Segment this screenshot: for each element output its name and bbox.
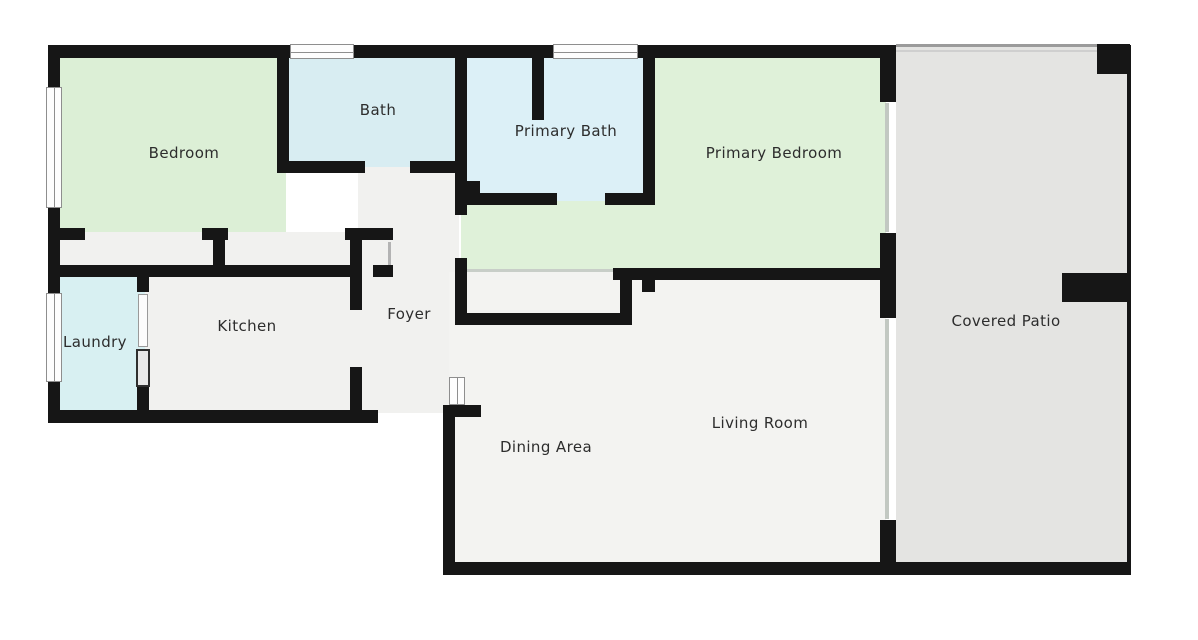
closet-door-line [388, 242, 391, 265]
wall-closet-right [620, 271, 632, 325]
wall-stub-below [642, 280, 655, 292]
room-label-kitchen: Kitchen [217, 317, 276, 335]
wall-primarybath-stub [532, 58, 544, 120]
wall-bedroom-bath [277, 45, 289, 173]
wall-laundry-bottom [137, 386, 149, 412]
wall-dining-left [443, 405, 455, 575]
wall-laundry-top [137, 273, 149, 292]
room-covered-patio [896, 46, 1127, 566]
patio-open-edge-line2 [896, 50, 1127, 52]
room-label-primary-bedroom: Primary Bedroom [706, 144, 843, 162]
wall-bath-bottom-left [277, 161, 365, 173]
room-kitchen [145, 267, 358, 414]
window-bath-top [290, 44, 354, 59]
wall-bottom [443, 562, 1131, 575]
wall-foyer-kitchen-lower [350, 367, 362, 410]
room-bedroom [54, 50, 286, 236]
wall-hall-upper-2 [202, 228, 228, 240]
wall-primarybath-bottom-left [467, 193, 557, 205]
wall-hall-stub [213, 240, 225, 267]
wall-patio-left-1 [880, 45, 896, 102]
room-foyer [358, 167, 459, 413]
wall-primarybath-right [643, 45, 655, 205]
window-laundry-left [46, 293, 62, 382]
room-label-bath: Bath [360, 101, 396, 119]
wall-patio-mid-block [1062, 273, 1127, 302]
room-label-foyer: Foyer [387, 305, 431, 323]
laundry-door-opening [138, 294, 148, 347]
window-primarybath-top [553, 44, 638, 59]
wall-patio-corner-block [1097, 44, 1130, 74]
wall-bottom-left [48, 410, 378, 423]
window-foyer-bottom [449, 377, 465, 405]
room-primary-bedroom-hall [461, 199, 653, 276]
wall-dining-topleft [443, 405, 481, 417]
wall-hall-lower-2 [373, 265, 393, 277]
wall-top [48, 45, 893, 58]
sliding-glass-door-living [885, 319, 889, 519]
wall-patio-left-3 [880, 520, 896, 563]
room-label-primary-bath: Primary Bath [515, 122, 617, 140]
wall-patio-right [1127, 45, 1131, 575]
floor-plan: Bedroom Bath Primary Bath Primary Bedroo… [0, 0, 1198, 640]
room-label-dining-area: Dining Area [500, 438, 592, 456]
window-bedroom-left [46, 87, 62, 208]
room-primary-bedroom [651, 50, 886, 276]
wall-hall-lower-1 [48, 265, 350, 277]
wall-hall-upper-1 [48, 228, 85, 240]
sliding-glass-door-bedroom [885, 103, 889, 232]
patio-open-edge-line [896, 44, 1127, 47]
wall-foyer-kitchen-upper [350, 240, 362, 310]
cased-opening-line [467, 269, 613, 272]
wall-hall-upper-3 [345, 228, 393, 240]
room-label-bedroom: Bedroom [149, 144, 220, 162]
wall-closet-bottom [455, 313, 632, 325]
room-label-laundry: Laundry [63, 333, 127, 351]
wall-patio-left-2 [880, 233, 896, 318]
room-label-covered-patio: Covered Patio [951, 312, 1060, 330]
laundry-door [136, 349, 150, 387]
room-label-living-room: Living Room [712, 414, 808, 432]
wall-primarybedroom-bottom [613, 268, 880, 280]
